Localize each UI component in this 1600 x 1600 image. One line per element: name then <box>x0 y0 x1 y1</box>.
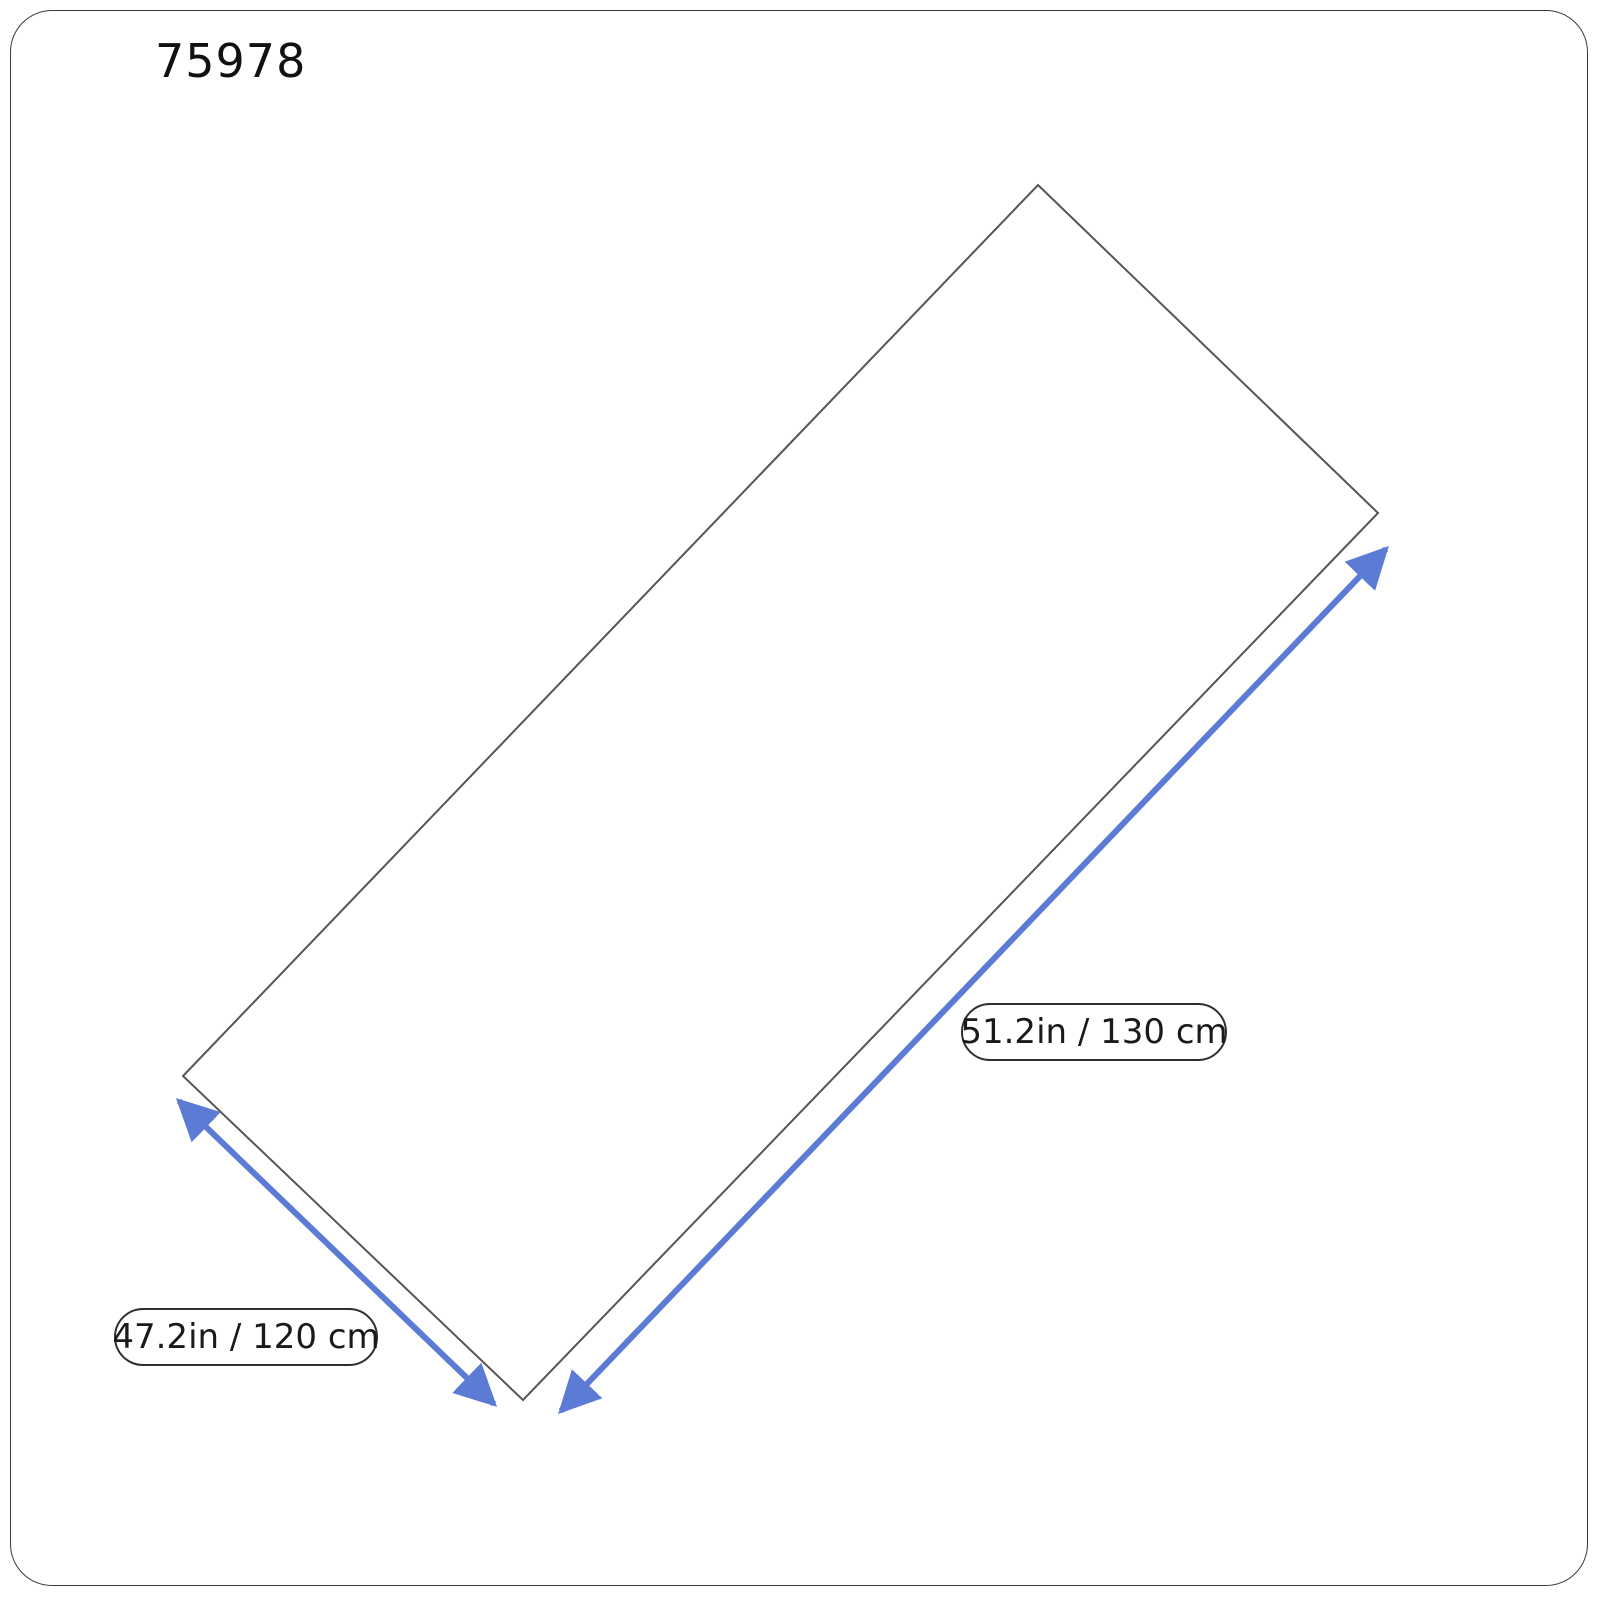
short-dimension-label: 47.2in / 120 cm <box>114 1308 378 1366</box>
panel-outline <box>183 185 1378 1400</box>
long-dimension-label: 51.2in / 130 cm <box>961 1003 1227 1061</box>
long-dimension-arrow <box>561 549 1386 1411</box>
